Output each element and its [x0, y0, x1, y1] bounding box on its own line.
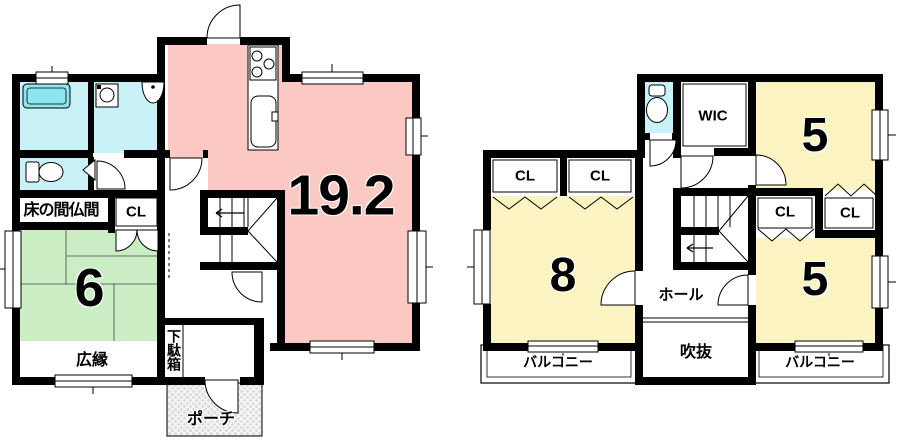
- label-hall-2f: ホール: [658, 288, 703, 303]
- label-getabako: 下駄箱: [167, 329, 181, 371]
- label-closet-2f-1: CL: [515, 169, 535, 184]
- label-closet-2f-2: CL: [590, 169, 610, 184]
- label-closet-1f: CL: [126, 205, 146, 220]
- area-label-room5-top: 5: [802, 112, 829, 160]
- label-porch: ポーチ: [187, 412, 235, 428]
- area-label-room8: 8: [550, 252, 577, 300]
- area-label-room5-bottom: 5: [802, 256, 829, 304]
- kitchen-counter: [248, 45, 278, 150]
- floorplan-drawing: [0, 0, 900, 445]
- label-hiroen: 広縁: [76, 353, 108, 369]
- area-label-washitsu: 6: [74, 261, 103, 315]
- washing-machine: [96, 84, 118, 107]
- label-tokonoma: 床の間仏間: [23, 203, 98, 219]
- toilet-2f: [647, 85, 668, 123]
- label-balcony-right: バルコニー: [785, 355, 855, 369]
- label-closet-2f-3: CL: [775, 205, 795, 220]
- label-wic: WIC: [698, 109, 727, 124]
- label-balcony-left: バルコニー: [523, 355, 593, 369]
- area-label-ldk: 19.2: [288, 168, 395, 225]
- floorplan: 19.2 6 床の間仏間 CL 広縁 下駄箱 ポーチ WIC CL CL CL …: [0, 0, 900, 445]
- toilet-1f: [26, 162, 63, 182]
- label-void: 吹抜: [680, 345, 712, 361]
- label-closet-2f-4: CL: [840, 206, 860, 221]
